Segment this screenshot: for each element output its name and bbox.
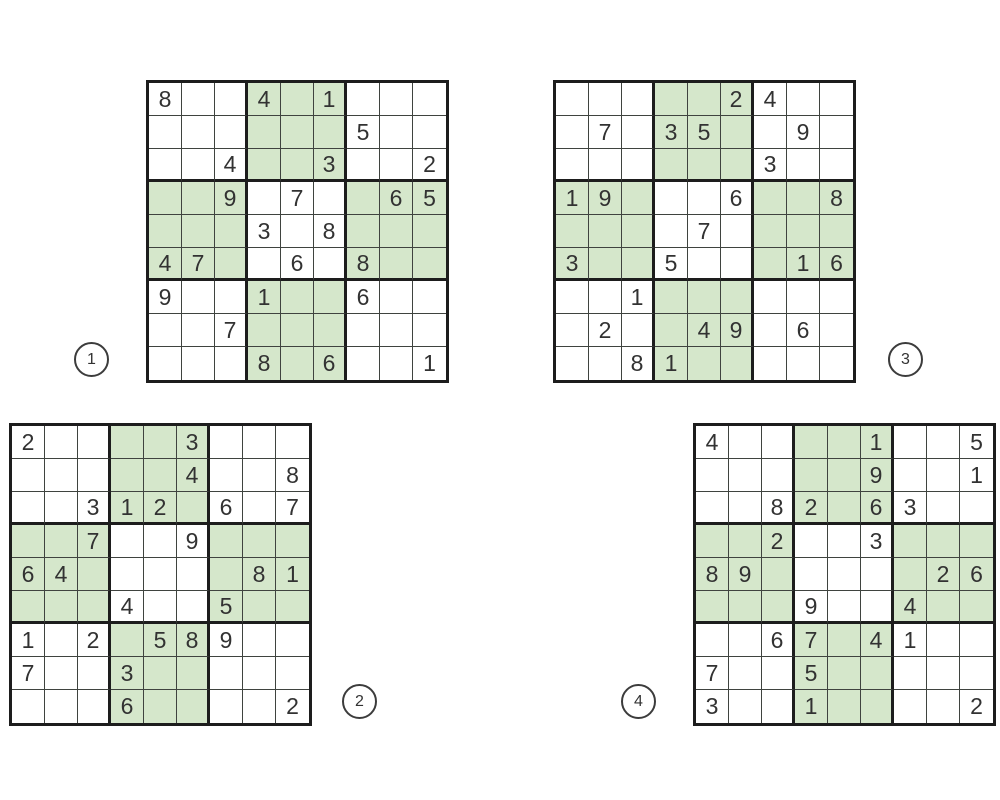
- sudoku-cell: 7: [215, 314, 248, 347]
- sudoku-cell: 6: [960, 558, 993, 591]
- sudoku-cell: 1: [556, 182, 589, 215]
- sudoku-cell: 7: [78, 525, 111, 558]
- sudoku-cell: 3: [754, 149, 787, 182]
- sudoku-cell: [721, 149, 754, 182]
- sudoku-cell: [281, 347, 314, 380]
- sudoku-cell: [729, 657, 762, 690]
- sudoku-cell: 9: [149, 281, 182, 314]
- sudoku-cell: [45, 591, 78, 624]
- sudoku-cell: [182, 281, 215, 314]
- sudoku-cell: 7: [281, 182, 314, 215]
- sudoku-cell: [894, 657, 927, 690]
- sudoku-cell: [787, 281, 820, 314]
- sudoku-cell: [45, 690, 78, 723]
- sudoku-cell: [248, 116, 281, 149]
- sudoku-cell: 1: [787, 248, 820, 281]
- sudoku-cell: [210, 657, 243, 690]
- sudoku-cell: [276, 657, 309, 690]
- sudoku-cell: 7: [12, 657, 45, 690]
- sudoku-cell: [144, 657, 177, 690]
- sudoku-cell: 8: [696, 558, 729, 591]
- sudoku-cell: 9: [787, 116, 820, 149]
- sudoku-cell: [210, 426, 243, 459]
- sudoku-cell: [215, 347, 248, 380]
- sudoku-cell: 7: [276, 492, 309, 525]
- sudoku-cell: [787, 182, 820, 215]
- sudoku-cell: 5: [688, 116, 721, 149]
- sudoku-cell: [828, 690, 861, 723]
- sudoku-cell: [215, 281, 248, 314]
- sudoku-cell: [380, 116, 413, 149]
- sudoku-cell: [281, 281, 314, 314]
- sudoku-cell: [182, 182, 215, 215]
- sudoku-cell: [182, 314, 215, 347]
- sudoku-cell: [347, 347, 380, 380]
- sudoku-cell: [149, 182, 182, 215]
- sudoku-cell: 4: [177, 459, 210, 492]
- sudoku-cell: [215, 83, 248, 116]
- sudoku-cell: [589, 347, 622, 380]
- sudoku-cell: 4: [861, 624, 894, 657]
- sudoku-cell: [12, 690, 45, 723]
- sudoku-cell: 9: [861, 459, 894, 492]
- sudoku-cell: [820, 116, 853, 149]
- sudoku-cell: [688, 149, 721, 182]
- sudoku-cell: [314, 182, 347, 215]
- sudoku-cell: [144, 690, 177, 723]
- sudoku-cell: 8: [820, 182, 853, 215]
- sudoku-cell: 6: [347, 281, 380, 314]
- sudoku-cell: 4: [894, 591, 927, 624]
- sudoku-cell: [655, 182, 688, 215]
- sudoku-cell: 3: [894, 492, 927, 525]
- sudoku-cell: [347, 83, 380, 116]
- sudoku-cell: 1: [622, 281, 655, 314]
- sudoku-cell: [696, 591, 729, 624]
- sudoku-cell: [589, 149, 622, 182]
- sudoku-cell: [622, 215, 655, 248]
- sudoku-sheet: 841543297653847689167861 234831267796481…: [0, 0, 1000, 800]
- sudoku-cell: 5: [655, 248, 688, 281]
- sudoku-cell: [78, 591, 111, 624]
- sudoku-cell: 2: [276, 690, 309, 723]
- sudoku-cell: [413, 215, 446, 248]
- sudoku-cell: 6: [380, 182, 413, 215]
- sudoku-cell: 7: [688, 215, 721, 248]
- sudoku-cell: [380, 215, 413, 248]
- sudoku-cell: [248, 248, 281, 281]
- sudoku-cell: [380, 83, 413, 116]
- sudoku-cell: [622, 248, 655, 281]
- sudoku-cell: 6: [111, 690, 144, 723]
- sudoku-cell: 5: [413, 182, 446, 215]
- sudoku-cell: 2: [762, 525, 795, 558]
- sudoku-cell: [243, 426, 276, 459]
- sudoku-cell: [210, 558, 243, 591]
- sudoku-cell: [828, 591, 861, 624]
- sudoku-cell: [828, 624, 861, 657]
- sudoku-cell: 3: [696, 690, 729, 723]
- sudoku-cell: [45, 492, 78, 525]
- sudoku-cell: 9: [210, 624, 243, 657]
- sudoku-cell: [589, 215, 622, 248]
- sudoku-cell: 9: [215, 182, 248, 215]
- sudoku-cell: 9: [589, 182, 622, 215]
- sudoku-cell: [281, 149, 314, 182]
- sudoku-cell: [688, 281, 721, 314]
- sudoku-cell: [927, 657, 960, 690]
- sudoku-cell: [729, 492, 762, 525]
- sudoku-cell: [820, 281, 853, 314]
- sudoku-cell: [820, 347, 853, 380]
- sudoku-cell: [729, 591, 762, 624]
- sudoku-cell: [281, 215, 314, 248]
- sudoku-cell: 6: [762, 624, 795, 657]
- sudoku-cell: [589, 248, 622, 281]
- sudoku-cell: 3: [177, 426, 210, 459]
- sudoku-cell: [729, 624, 762, 657]
- sudoku-cell: 5: [144, 624, 177, 657]
- sudoku-cell: [622, 182, 655, 215]
- sudoku-cell: 3: [248, 215, 281, 248]
- sudoku-cell: [347, 314, 380, 347]
- sudoku-cell: [655, 83, 688, 116]
- sudoku-cell: [894, 558, 927, 591]
- sudoku-cell: [380, 281, 413, 314]
- sudoku-cell: 5: [347, 116, 380, 149]
- puzzle-number-badge-1: 1: [74, 342, 109, 377]
- sudoku-cell: [721, 347, 754, 380]
- sudoku-cell: [314, 248, 347, 281]
- sudoku-cell: [149, 116, 182, 149]
- sudoku-cell: [861, 591, 894, 624]
- sudoku-cell: [149, 149, 182, 182]
- sudoku-cell: [828, 459, 861, 492]
- sudoku-cell: [622, 314, 655, 347]
- sudoku-cell: [413, 83, 446, 116]
- sudoku-cell: [276, 624, 309, 657]
- sudoku-cell: [696, 525, 729, 558]
- sudoku-cell: [556, 281, 589, 314]
- sudoku-cell: [182, 149, 215, 182]
- sudoku-cell: [556, 83, 589, 116]
- sudoku-cell: [787, 149, 820, 182]
- sudoku-cell: [144, 558, 177, 591]
- sudoku-cell: 1: [861, 426, 894, 459]
- sudoku-cell: [762, 459, 795, 492]
- sudoku-grid-3: 24735931968735161249681: [553, 80, 856, 383]
- sudoku-cell: [78, 690, 111, 723]
- sudoku-cell: [795, 525, 828, 558]
- sudoku-cell: [347, 215, 380, 248]
- sudoku-cell: [688, 347, 721, 380]
- sudoku-cell: [754, 116, 787, 149]
- sudoku-cell: [380, 347, 413, 380]
- sudoku-cell: [960, 525, 993, 558]
- sudoku-cell: [78, 657, 111, 690]
- puzzle-number-4: 4: [634, 693, 643, 711]
- sudoku-cell: [688, 248, 721, 281]
- sudoku-cell: [729, 690, 762, 723]
- sudoku-cell: 3: [111, 657, 144, 690]
- sudoku-cell: [182, 215, 215, 248]
- sudoku-cell: [177, 591, 210, 624]
- sudoku-cell: [894, 426, 927, 459]
- sudoku-cell: [45, 426, 78, 459]
- sudoku-cell: [787, 83, 820, 116]
- sudoku-cell: [177, 492, 210, 525]
- sudoku-cell: [111, 558, 144, 591]
- sudoku-cell: [721, 281, 754, 314]
- sudoku-cell: [729, 525, 762, 558]
- sudoku-cell: [215, 116, 248, 149]
- sudoku-cell: [960, 657, 993, 690]
- sudoku-cell: [380, 149, 413, 182]
- sudoku-cell: 8: [276, 459, 309, 492]
- sudoku-cell: [894, 690, 927, 723]
- sudoku-cell: [828, 492, 861, 525]
- sudoku-cell: [927, 492, 960, 525]
- sudoku-cell: 3: [556, 248, 589, 281]
- sudoku-cell: [820, 149, 853, 182]
- sudoku-cell: [111, 426, 144, 459]
- puzzle-number-badge-3: 3: [888, 342, 923, 377]
- sudoku-cell: [795, 459, 828, 492]
- sudoku-cell: [182, 83, 215, 116]
- sudoku-cell: [276, 591, 309, 624]
- sudoku-cell: [556, 215, 589, 248]
- sudoku-cell: 4: [45, 558, 78, 591]
- sudoku-cell: [149, 215, 182, 248]
- sudoku-cell: 1: [960, 459, 993, 492]
- sudoku-cell: 6: [281, 248, 314, 281]
- sudoku-cell: [314, 314, 347, 347]
- sudoku-cell: [655, 149, 688, 182]
- sudoku-cell: 6: [12, 558, 45, 591]
- sudoku-cell: [927, 591, 960, 624]
- sudoku-cell: [795, 558, 828, 591]
- sudoku-cell: [144, 591, 177, 624]
- puzzle-number-3: 3: [901, 351, 910, 369]
- sudoku-cell: 4: [688, 314, 721, 347]
- sudoku-cell: [45, 657, 78, 690]
- sudoku-cell: [861, 657, 894, 690]
- sudoku-cell: [144, 426, 177, 459]
- sudoku-cell: 1: [413, 347, 446, 380]
- sudoku-cell: 7: [696, 657, 729, 690]
- sudoku-cell: 8: [243, 558, 276, 591]
- sudoku-cell: [622, 83, 655, 116]
- sudoku-cell: 4: [696, 426, 729, 459]
- sudoku-cell: 6: [721, 182, 754, 215]
- sudoku-cell: [762, 426, 795, 459]
- sudoku-cell: [655, 281, 688, 314]
- sudoku-cell: [347, 149, 380, 182]
- sudoku-cell: [243, 624, 276, 657]
- sudoku-cell: [960, 591, 993, 624]
- sudoku-cell: [276, 426, 309, 459]
- puzzle-number-1: 1: [87, 351, 96, 369]
- sudoku-cell: 7: [795, 624, 828, 657]
- sudoku-cell: [655, 215, 688, 248]
- sudoku-cell: [927, 426, 960, 459]
- sudoku-cell: 4: [215, 149, 248, 182]
- sudoku-cell: [182, 116, 215, 149]
- sudoku-cell: [177, 558, 210, 591]
- sudoku-cell: [762, 591, 795, 624]
- sudoku-cell: 3: [655, 116, 688, 149]
- sudoku-cell: [927, 459, 960, 492]
- sudoku-cell: 1: [655, 347, 688, 380]
- sudoku-cell: [787, 347, 820, 380]
- sudoku-cell: [281, 83, 314, 116]
- sudoku-cell: [12, 459, 45, 492]
- sudoku-cell: [177, 690, 210, 723]
- sudoku-cell: 4: [248, 83, 281, 116]
- sudoku-cell: 3: [314, 149, 347, 182]
- sudoku-cell: [314, 116, 347, 149]
- sudoku-cell: [45, 525, 78, 558]
- sudoku-cell: [413, 116, 446, 149]
- sudoku-cell: 3: [78, 492, 111, 525]
- sudoku-cell: [556, 116, 589, 149]
- sudoku-cell: [45, 459, 78, 492]
- sudoku-cell: [149, 314, 182, 347]
- sudoku-cell: [248, 149, 281, 182]
- sudoku-cell: 1: [111, 492, 144, 525]
- sudoku-cell: [210, 525, 243, 558]
- sudoku-cell: [754, 248, 787, 281]
- sudoku-cell: 6: [861, 492, 894, 525]
- sudoku-cell: 8: [248, 347, 281, 380]
- sudoku-cell: [380, 248, 413, 281]
- sudoku-cell: [243, 459, 276, 492]
- sudoku-grid-1: 841543297653847689167861: [146, 80, 449, 383]
- sudoku-cell: [413, 314, 446, 347]
- sudoku-cell: [243, 690, 276, 723]
- sudoku-cell: [243, 492, 276, 525]
- sudoku-cell: [248, 182, 281, 215]
- sudoku-cell: [210, 690, 243, 723]
- sudoku-cell: 5: [795, 657, 828, 690]
- sudoku-cell: [413, 248, 446, 281]
- sudoku-cell: [927, 525, 960, 558]
- sudoku-cell: [828, 426, 861, 459]
- sudoku-cell: 9: [729, 558, 762, 591]
- sudoku-cell: [762, 558, 795, 591]
- sudoku-cell: [243, 657, 276, 690]
- sudoku-cell: [655, 314, 688, 347]
- sudoku-cell: 8: [314, 215, 347, 248]
- sudoku-cell: 2: [144, 492, 177, 525]
- sudoku-cell: [45, 624, 78, 657]
- puzzle-number-badge-4: 4: [621, 684, 656, 719]
- sudoku-cell: 1: [276, 558, 309, 591]
- sudoku-cell: [78, 459, 111, 492]
- sudoku-cell: 8: [177, 624, 210, 657]
- sudoku-cell: [721, 116, 754, 149]
- sudoku-cell: [754, 314, 787, 347]
- sudoku-cell: [894, 459, 927, 492]
- sudoku-cell: [688, 182, 721, 215]
- sudoku-cell: [413, 281, 446, 314]
- sudoku-cell: [622, 116, 655, 149]
- sudoku-cell: [78, 558, 111, 591]
- sudoku-cell: [828, 525, 861, 558]
- sudoku-cell: [787, 215, 820, 248]
- sudoku-cell: [861, 690, 894, 723]
- puzzle-number-2: 2: [355, 693, 364, 711]
- sudoku-cell: 2: [12, 426, 45, 459]
- sudoku-cell: [861, 558, 894, 591]
- sudoku-cell: [177, 657, 210, 690]
- sudoku-cell: [721, 215, 754, 248]
- sudoku-cell: [243, 525, 276, 558]
- sudoku-grid-4: 41591826323892694674175312: [693, 423, 996, 726]
- sudoku-cell: 9: [795, 591, 828, 624]
- sudoku-cell: [820, 83, 853, 116]
- sudoku-cell: 5: [210, 591, 243, 624]
- sudoku-cell: 9: [177, 525, 210, 558]
- sudoku-cell: [556, 347, 589, 380]
- sudoku-cell: [111, 459, 144, 492]
- sudoku-cell: 2: [927, 558, 960, 591]
- sudoku-cell: [12, 591, 45, 624]
- sudoku-cell: 3: [861, 525, 894, 558]
- sudoku-grid-2: 23483126779648145125897362: [9, 423, 312, 726]
- sudoku-cell: 1: [314, 83, 347, 116]
- sudoku-cell: [276, 525, 309, 558]
- sudoku-cell: 5: [960, 426, 993, 459]
- sudoku-cell: [696, 459, 729, 492]
- sudoku-cell: [347, 182, 380, 215]
- sudoku-cell: [754, 215, 787, 248]
- sudoku-cell: [144, 459, 177, 492]
- sudoku-cell: 2: [589, 314, 622, 347]
- sudoku-cell: 7: [182, 248, 215, 281]
- sudoku-cell: 8: [347, 248, 380, 281]
- sudoku-cell: [729, 426, 762, 459]
- sudoku-cell: [144, 525, 177, 558]
- sudoku-cell: [556, 314, 589, 347]
- sudoku-cell: 1: [894, 624, 927, 657]
- sudoku-cell: 4: [754, 83, 787, 116]
- sudoku-cell: [12, 492, 45, 525]
- sudoku-cell: [927, 690, 960, 723]
- puzzle-number-badge-2: 2: [342, 684, 377, 719]
- sudoku-cell: [754, 281, 787, 314]
- sudoku-cell: [622, 149, 655, 182]
- sudoku-cell: [960, 624, 993, 657]
- sudoku-cell: [696, 492, 729, 525]
- sudoku-cell: [688, 83, 721, 116]
- sudoku-cell: 8: [622, 347, 655, 380]
- sudoku-cell: 2: [795, 492, 828, 525]
- sudoku-cell: 2: [413, 149, 446, 182]
- sudoku-cell: [754, 347, 787, 380]
- sudoku-cell: 6: [210, 492, 243, 525]
- sudoku-cell: [12, 525, 45, 558]
- sudoku-cell: [960, 492, 993, 525]
- sudoku-cell: [210, 459, 243, 492]
- sudoku-cell: 7: [589, 116, 622, 149]
- sudoku-cell: [828, 657, 861, 690]
- sudoku-cell: 1: [12, 624, 45, 657]
- sudoku-cell: [762, 690, 795, 723]
- sudoku-cell: 6: [314, 347, 347, 380]
- sudoku-cell: [762, 657, 795, 690]
- sudoku-cell: 6: [820, 248, 853, 281]
